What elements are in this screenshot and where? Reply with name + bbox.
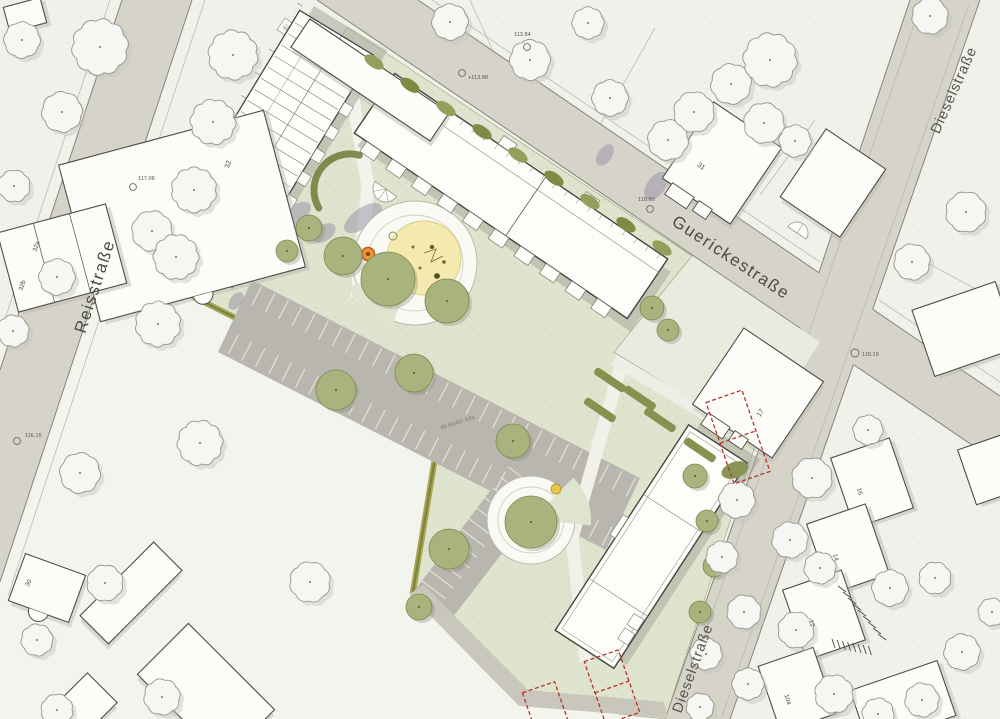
tree-trunk-dot — [335, 389, 337, 391]
tree-trunk-dot — [667, 329, 669, 331]
tree-trunk-dot — [387, 278, 389, 280]
tree-trunk-dot — [79, 472, 81, 474]
tree-trunk-dot — [965, 211, 967, 213]
tree-trunk-dot — [12, 330, 14, 332]
tree-trunk-dot — [929, 15, 931, 17]
tree-trunk-dot — [736, 499, 738, 501]
tree-trunk-dot — [99, 46, 101, 48]
tree-trunk-dot — [699, 611, 701, 613]
tree-trunk-dot — [867, 429, 869, 431]
tree-trunk-dot — [232, 54, 234, 56]
tree-trunk-dot — [529, 59, 531, 61]
tree-trunk-dot — [877, 713, 879, 715]
tree-trunk-dot — [833, 693, 835, 695]
tree-trunk-dot — [693, 111, 695, 113]
tree-trunk-dot — [911, 261, 913, 263]
tree-trunk-dot — [811, 477, 813, 479]
tree-trunk-dot — [13, 185, 15, 187]
tree-trunk-dot — [193, 189, 195, 191]
tree-trunk-dot — [921, 699, 923, 701]
tree-trunk-dot — [104, 582, 106, 584]
tree-trunk-dot — [21, 39, 23, 41]
tree-trunk-dot — [512, 440, 514, 442]
tree-trunk-dot — [819, 567, 821, 569]
tree-trunk-dot — [747, 683, 749, 685]
tree-trunk-dot — [199, 442, 201, 444]
tree-trunk-dot — [889, 587, 891, 589]
elevation-value: 113.84 — [514, 32, 531, 38]
tree-trunk-dot — [309, 581, 311, 583]
tree-trunk-dot — [721, 556, 723, 558]
equipment-dot — [442, 260, 446, 264]
tree-trunk-dot — [413, 372, 415, 374]
tree-trunk-dot — [609, 97, 611, 99]
tree-trunk-dot — [446, 300, 448, 302]
elevation-value: 118.50 — [638, 197, 655, 203]
tree-trunk-dot — [934, 577, 936, 579]
tree-trunk-dot — [530, 521, 532, 523]
tree-trunk-dot — [61, 111, 63, 113]
equipment-dot — [430, 245, 434, 249]
tree-trunk-dot — [651, 307, 653, 309]
tree-trunk-dot — [730, 83, 732, 85]
tree-trunk-dot — [161, 696, 163, 698]
tree-trunk-dot — [56, 276, 58, 278]
tree-trunk-dot — [699, 706, 701, 708]
tree-trunk-dot — [667, 139, 669, 141]
tree-trunk-dot — [743, 611, 745, 613]
tree-trunk-dot — [706, 520, 708, 522]
tree-trunk-dot — [151, 230, 153, 232]
tree-trunk-dot — [308, 227, 310, 229]
tree-trunk-dot — [794, 140, 796, 142]
tree-trunk-dot — [36, 639, 38, 641]
equipment-dot — [412, 246, 415, 249]
play-marker-yellow — [551, 484, 561, 494]
tree-trunk-dot — [448, 548, 450, 550]
tree-trunk-dot — [418, 606, 420, 608]
tree-trunk-dot — [56, 709, 58, 711]
tree-trunk-dot — [212, 121, 214, 123]
tree-trunk-dot — [175, 256, 177, 258]
sun-center — [366, 252, 370, 256]
site-plan-map: 113.84 +113.88 117.08 118.50 118.19 116.… — [0, 0, 1000, 719]
elevation-value: 116.15 — [25, 433, 42, 439]
tree-trunk-dot — [789, 539, 791, 541]
tree-trunk-dot — [795, 629, 797, 631]
tree-trunk-dot — [157, 323, 159, 325]
tree-trunk-dot — [961, 651, 963, 653]
tree-trunk-dot — [342, 255, 344, 257]
elevation-value: 118.19 — [862, 352, 879, 358]
equipment-dot — [419, 267, 422, 270]
tree-trunk-dot — [587, 22, 589, 24]
tree-trunk-dot — [991, 611, 993, 613]
tree-trunk-dot — [763, 122, 765, 124]
tree-trunk-dot — [694, 475, 696, 477]
elevation-value: +113.88 — [468, 75, 488, 81]
elevation-value: 117.08 — [138, 176, 155, 182]
site-plan-stage: 113.84 +113.88 117.08 118.50 118.19 116.… — [0, 0, 1000, 719]
tree-trunk-dot — [286, 250, 288, 252]
tree-trunk-dot — [449, 21, 451, 23]
tree-trunk-dot — [769, 59, 771, 61]
equipment-dot — [434, 273, 440, 279]
